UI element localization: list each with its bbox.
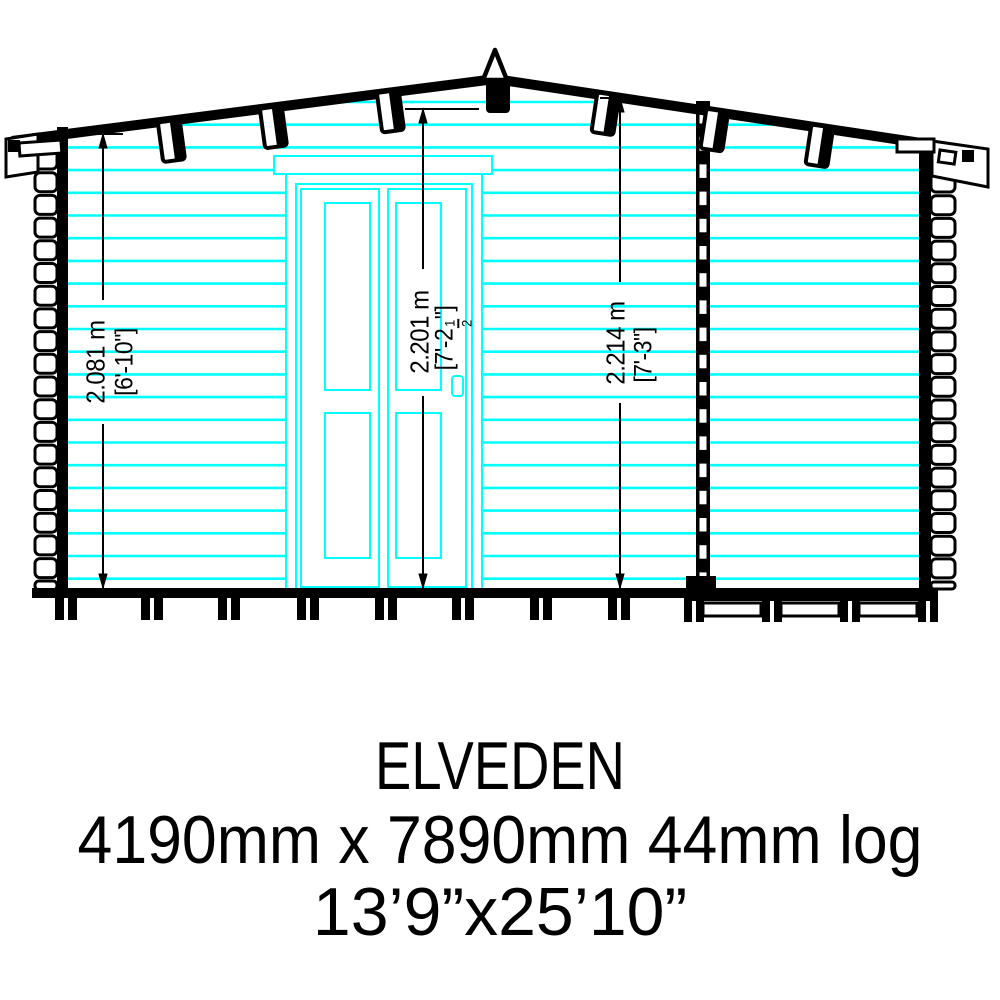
log-end — [931, 264, 955, 283]
deck-post — [762, 597, 770, 622]
joint-dash — [700, 518, 707, 532]
fraction-numerator: 1 — [442, 319, 459, 328]
foot — [465, 598, 474, 620]
deck-post — [930, 597, 938, 622]
purlin-end — [700, 109, 729, 152]
log-end — [35, 536, 57, 555]
joint-dash — [700, 300, 707, 314]
log-end — [931, 445, 955, 464]
dimension-right-imperial: [7'-3"] — [630, 327, 659, 382]
log-end — [931, 491, 955, 510]
foot — [530, 598, 539, 620]
foot — [231, 598, 240, 620]
log-end — [35, 264, 57, 283]
title-model-name: ELVEDEN — [375, 727, 625, 805]
joint-dash — [700, 328, 707, 342]
foot — [388, 598, 397, 620]
log-end — [35, 354, 57, 373]
log-end — [35, 513, 57, 532]
log-end — [931, 536, 955, 555]
joint-dash — [700, 464, 707, 478]
foundation-feet — [55, 598, 630, 620]
joint-dash — [700, 164, 707, 178]
log-end — [931, 468, 955, 487]
door-panel — [396, 413, 441, 558]
joint-dash — [700, 355, 707, 369]
double-door — [274, 156, 492, 590]
log-end — [931, 355, 955, 374]
deck-post — [684, 597, 692, 622]
foot — [68, 598, 77, 620]
log-end — [35, 286, 57, 305]
foot — [608, 598, 617, 620]
purlin-end — [158, 119, 186, 162]
roof-finial — [483, 50, 507, 80]
log-end — [931, 196, 955, 215]
left-wall-bar — [57, 127, 68, 590]
fraction-denominator: 2 — [459, 320, 474, 327]
corner-joint-strip — [686, 101, 716, 590]
foot — [55, 598, 64, 620]
purlin-end — [805, 124, 834, 167]
foot — [375, 598, 384, 620]
joint-dash — [700, 273, 707, 287]
dimension-left-imperial: [6'-10"] — [111, 328, 140, 396]
log-end — [35, 422, 57, 441]
joint-dash — [700, 192, 707, 206]
door-handle — [452, 376, 463, 396]
joint-dash — [700, 545, 707, 559]
deck-plank — [781, 603, 839, 616]
title-size-imperial: 13’9”x25’10” — [313, 873, 687, 951]
ridge-beam-end — [486, 79, 510, 113]
dimension-door-imperial-suffix: "] — [430, 306, 458, 320]
foot — [154, 598, 163, 620]
deck-post — [696, 597, 704, 622]
log-end — [931, 287, 955, 306]
joint-dash — [700, 246, 707, 260]
joint-dash — [700, 409, 707, 423]
dimension-door-fraction: 12 — [442, 319, 473, 328]
dimension-right-meters: 2.214 m — [601, 301, 632, 384]
purlin-end — [260, 106, 288, 149]
log-end — [931, 582, 955, 589]
drawing-canvas: 2.081 m [6'-10"] 2.201 m [7'-212"] 2.214… — [0, 0, 1000, 1000]
dimension-left-meters: 2.081 m — [81, 320, 112, 403]
deck-post — [918, 597, 926, 622]
foot — [310, 598, 319, 620]
foot — [141, 598, 150, 620]
log-end — [35, 400, 57, 419]
door-head-fascia — [274, 156, 492, 174]
log-end — [931, 218, 955, 237]
log-end — [931, 423, 955, 442]
log-end — [931, 309, 955, 328]
foot — [297, 598, 306, 620]
log-end — [931, 514, 955, 533]
log-courses — [60, 102, 928, 579]
door-panel — [325, 413, 370, 558]
deck-plank — [859, 603, 917, 616]
log-end — [35, 377, 57, 396]
purlin-end — [377, 90, 405, 133]
log-end — [35, 173, 57, 192]
log-end — [35, 491, 57, 510]
deck-plank — [703, 603, 761, 616]
dimension-door-imperial-prefix: [7'-2 — [430, 329, 458, 371]
log-end — [35, 309, 57, 328]
door-panel — [325, 203, 370, 390]
log-end — [35, 241, 57, 260]
deck-post — [774, 597, 782, 622]
joint-dash — [700, 491, 707, 505]
log-end — [35, 332, 57, 351]
deck-bearers — [684, 596, 938, 622]
foot — [621, 598, 630, 620]
dimension-door-imperial: [7'-212"] — [430, 306, 473, 371]
log-end — [35, 218, 57, 237]
joint-dash — [700, 436, 707, 450]
log-end — [931, 400, 955, 419]
foot — [218, 598, 227, 620]
joint-dash — [700, 382, 707, 396]
joint-dash — [700, 219, 707, 233]
right-wall-bar — [919, 139, 931, 590]
log-end — [931, 241, 955, 260]
log-end — [931, 559, 955, 578]
log-end — [35, 195, 57, 214]
left-log-ends — [35, 150, 57, 590]
log-end — [931, 332, 955, 351]
log-end — [35, 468, 57, 487]
log-end — [35, 445, 57, 464]
corner-base-block — [686, 576, 716, 590]
log-end — [931, 377, 955, 396]
title-size-metric: 4190mm x 7890mm 44mm log — [78, 801, 923, 879]
deck-post — [852, 597, 860, 622]
deck-post — [840, 597, 848, 622]
right-log-ends — [931, 173, 955, 589]
foot — [543, 598, 552, 620]
foot — [452, 598, 461, 620]
log-end — [35, 559, 57, 578]
